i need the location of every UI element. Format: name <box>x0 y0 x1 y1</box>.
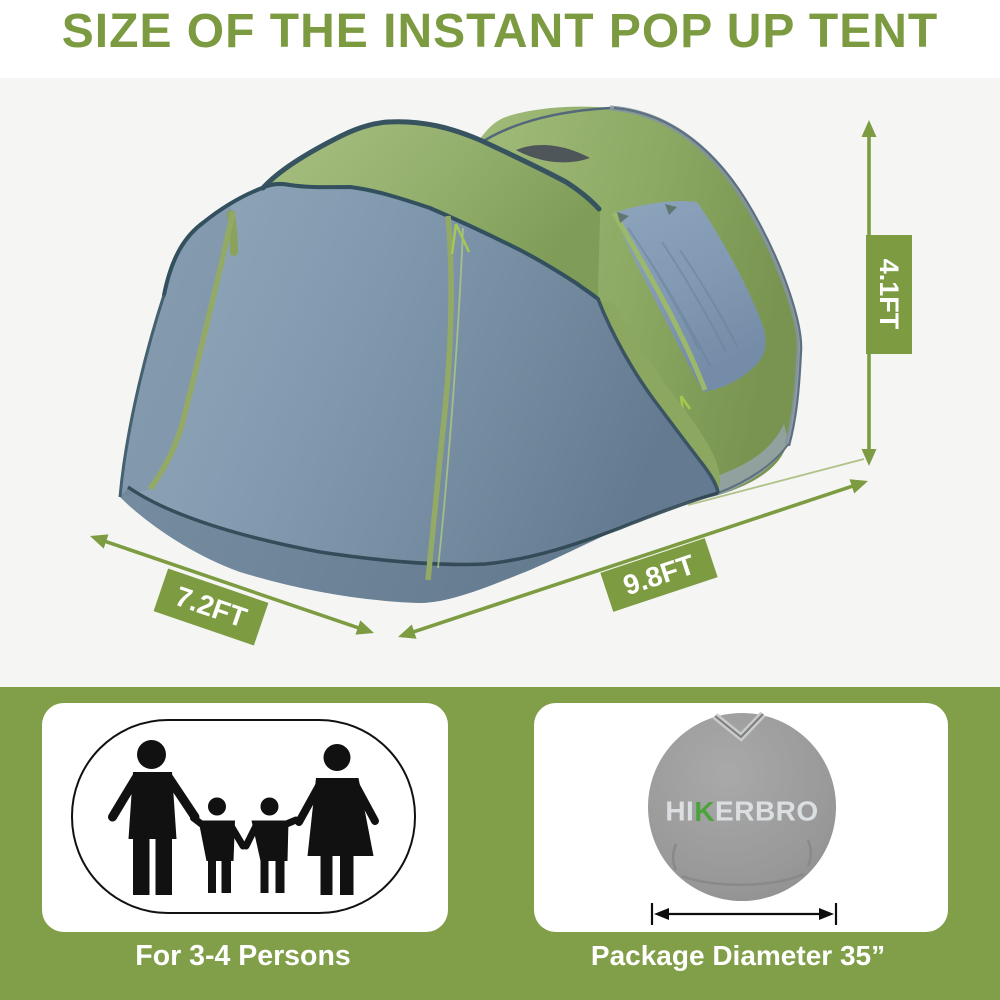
svg-text:Package Diameter 35”: Package Diameter 35” <box>591 940 885 971</box>
svg-text:4.1FT: 4.1FT <box>874 259 904 330</box>
svg-text:For 3-4 Persons: For 3-4 Persons <box>135 940 350 972</box>
svg-text:SIZE OF THE INSTANT POP UP TEN: SIZE OF THE INSTANT POP UP TENT <box>62 5 938 58</box>
svg-text:HIKERBRO: HIKERBRO <box>665 796 818 827</box>
